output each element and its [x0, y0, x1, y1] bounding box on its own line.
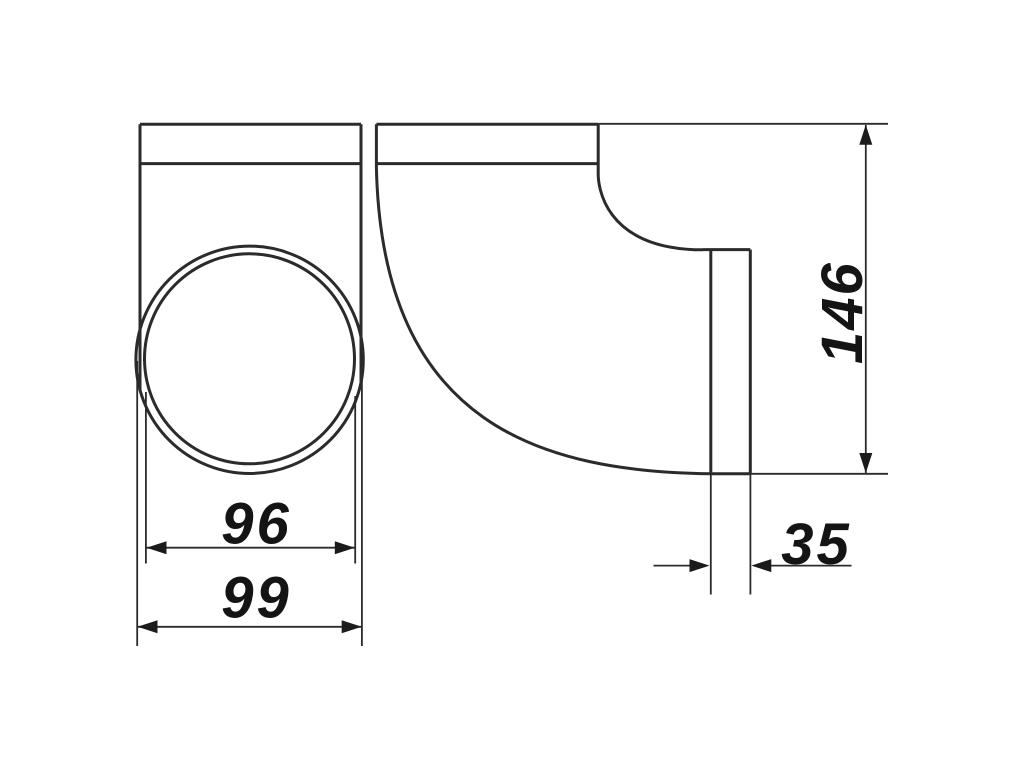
- svg-text:99: 99: [221, 566, 292, 631]
- svg-text:146: 146: [810, 261, 875, 364]
- svg-text:35: 35: [781, 512, 852, 577]
- svg-text:96: 96: [221, 492, 292, 557]
